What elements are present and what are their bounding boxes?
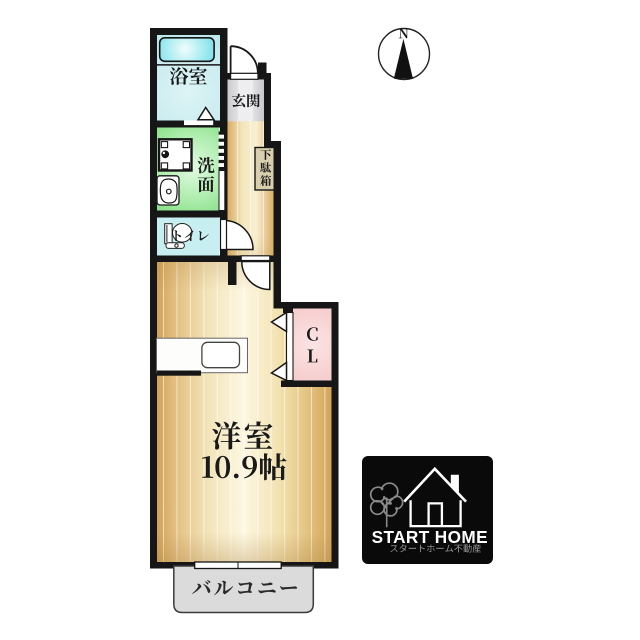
svg-text:START HOME: START HOME — [372, 527, 488, 547]
